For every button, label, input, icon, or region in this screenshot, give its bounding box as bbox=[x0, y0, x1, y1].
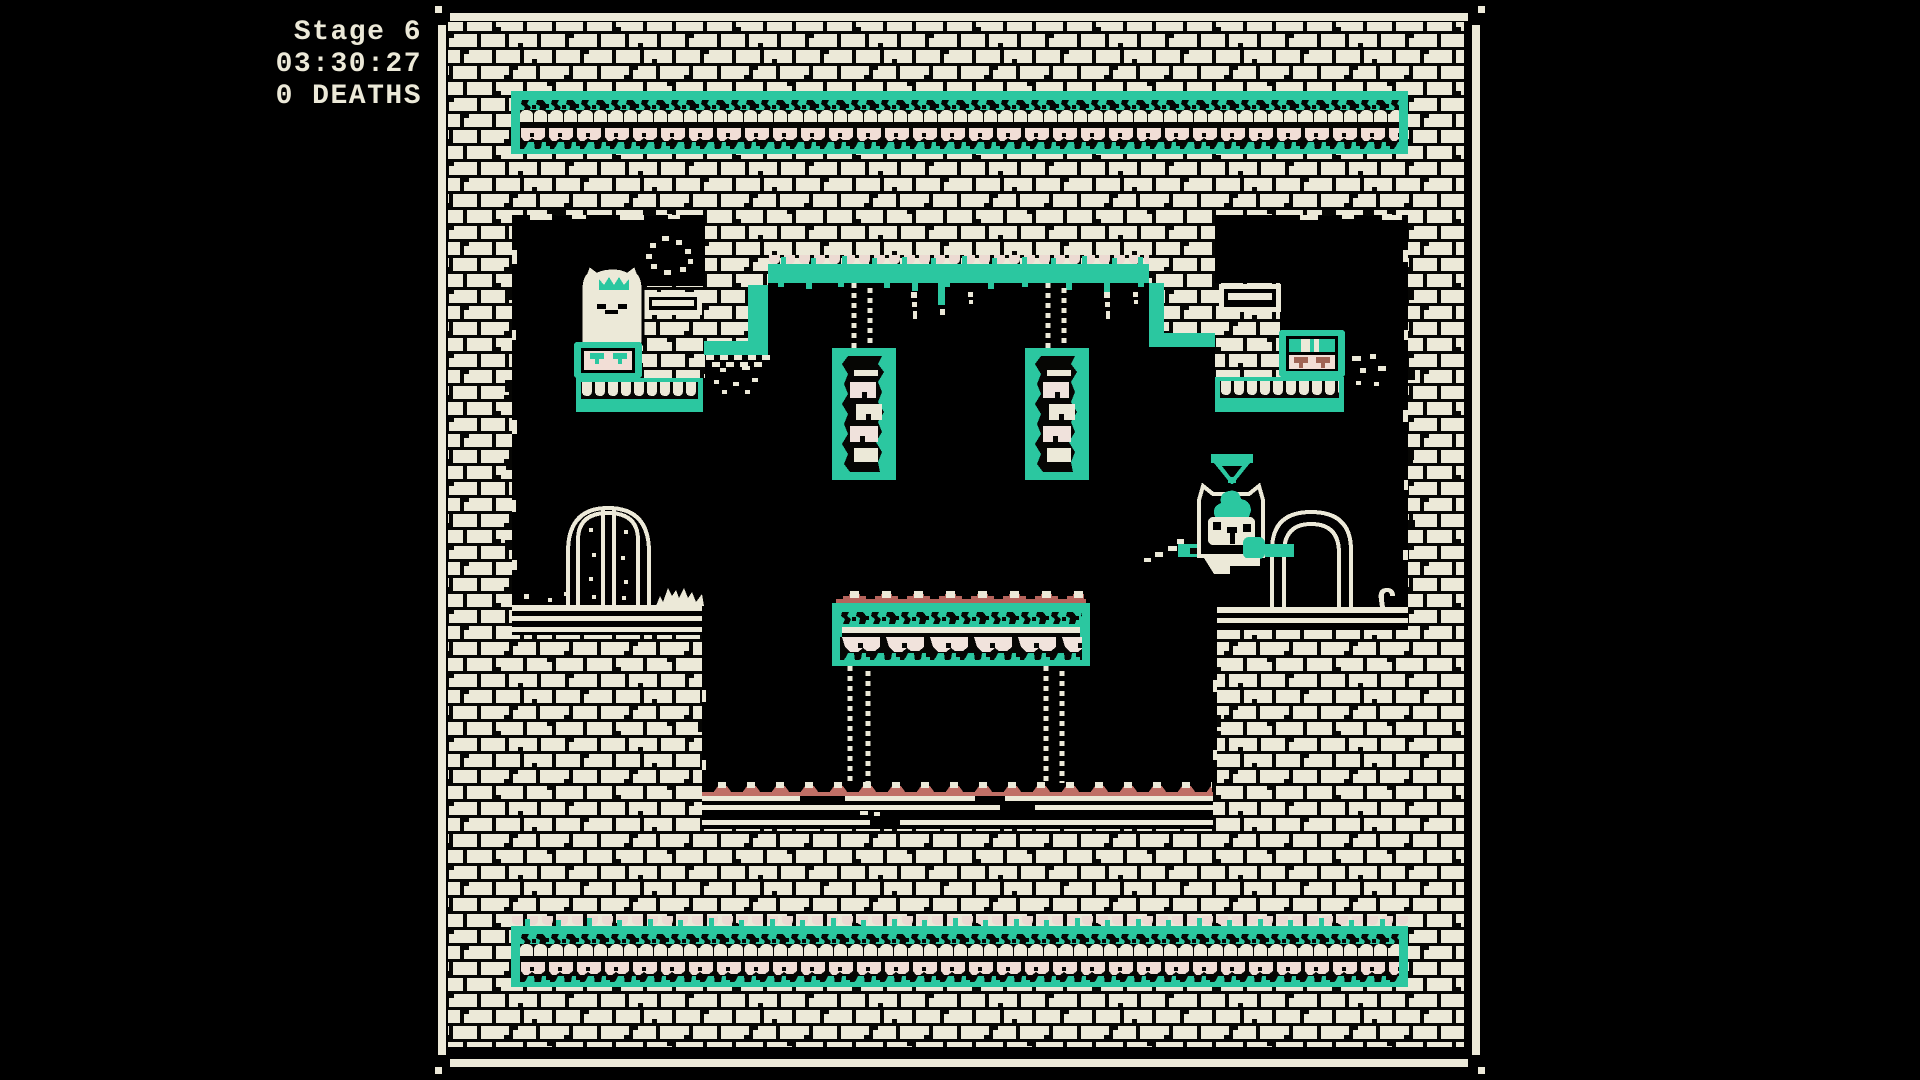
svg-text:03:30:27: 03:30:27 bbox=[276, 49, 422, 80]
svg-text:0 DEATHS: 0 DEATHS bbox=[276, 81, 422, 112]
svg-text:Stage 6: Stage 6 bbox=[294, 17, 422, 48]
